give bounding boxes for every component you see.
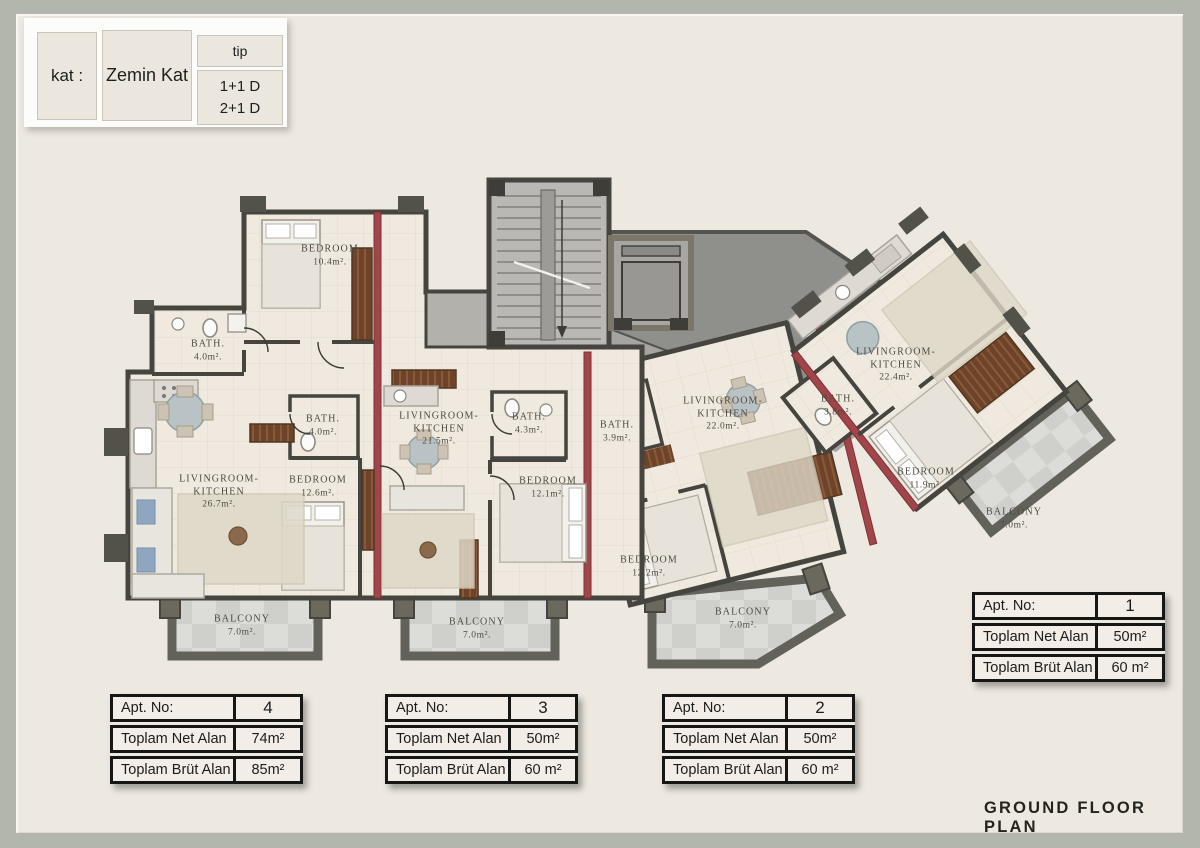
row-label: Toplam Brüt Alan xyxy=(975,657,1098,679)
row-label: Toplam Net Alan xyxy=(388,728,511,750)
legend-box: kat : Zemin Kat tip 1+1 D 2+1 D xyxy=(24,18,287,127)
row-label: Toplam Net Alan xyxy=(113,728,236,750)
apt-table-1: Apt. No:1Toplam Net Alan50m²Toplam Brüt … xyxy=(972,592,1165,682)
row-value: 60 m² xyxy=(1098,657,1162,679)
floor-plan-page: { "legend": { "kat_label": "kat :", "kat… xyxy=(0,0,1200,848)
row-value: 50m² xyxy=(511,728,575,750)
tip-label-cell: tip xyxy=(197,35,283,67)
apt-table-3-row-2: Toplam Brüt Alan60 m² xyxy=(385,756,578,784)
row-value: 1 xyxy=(1098,595,1162,617)
apt-table-4: Apt. No:4Toplam Net Alan74m²Toplam Brüt … xyxy=(110,694,303,784)
apt-table-3: Apt. No:3Toplam Net Alan50m²Toplam Brüt … xyxy=(385,694,578,784)
row-label: Toplam Brüt Alan xyxy=(665,759,788,781)
tip-value-1: 1+1 D xyxy=(220,76,260,98)
row-label: Toplam Brüt Alan xyxy=(388,759,511,781)
apt-table-1-row-0: Apt. No:1 xyxy=(972,592,1165,620)
tip-label: tip xyxy=(233,43,248,59)
apt-table-3-row-1: Toplam Net Alan50m² xyxy=(385,725,578,753)
elevator xyxy=(611,238,691,330)
kat-label: kat : xyxy=(51,66,83,86)
row-label: Apt. No: xyxy=(975,595,1098,617)
row-value: 74m² xyxy=(236,728,300,750)
row-value: 2 xyxy=(788,697,852,719)
apt-table-2-row-0: Apt. No:2 xyxy=(662,694,855,722)
tip-value-2: 2+1 D xyxy=(220,98,260,120)
row-value: 4 xyxy=(236,697,300,719)
apt-table-4-row-2: Toplam Brüt Alan85m² xyxy=(110,756,303,784)
apt-table-3-row-0: Apt. No:3 xyxy=(385,694,578,722)
kat-label-cell: kat : xyxy=(37,32,97,120)
apt-table-2-row-2: Toplam Brüt Alan60 m² xyxy=(662,756,855,784)
kat-value: Zemin Kat xyxy=(106,65,188,86)
row-label: Toplam Net Alan xyxy=(665,728,788,750)
row-value: 60 m² xyxy=(788,759,852,781)
apt-table-2-row-1: Toplam Net Alan50m² xyxy=(662,725,855,753)
apt-table-4-row-0: Apt. No:4 xyxy=(110,694,303,722)
row-label: Toplam Brüt Alan xyxy=(113,759,236,781)
tip-values-cell: 1+1 D 2+1 D xyxy=(197,70,283,125)
row-value: 3 xyxy=(511,697,575,719)
row-label: Toplam Net Alan xyxy=(975,626,1098,648)
apt-table-1-row-1: Toplam Net Alan50m² xyxy=(972,623,1165,651)
row-label: Apt. No: xyxy=(388,697,511,719)
row-value: 50m² xyxy=(1098,626,1162,648)
row-value: 50m² xyxy=(788,728,852,750)
row-value: 85m² xyxy=(236,759,300,781)
apt-table-1-row-2: Toplam Brüt Alan60 m² xyxy=(972,654,1165,682)
apt-table-4-row-1: Toplam Net Alan74m² xyxy=(110,725,303,753)
row-label: Apt. No: xyxy=(113,697,236,719)
staircase xyxy=(489,180,609,347)
plan-title: GROUND FLOOR PLAN xyxy=(984,799,1200,837)
row-value: 60 m² xyxy=(511,759,575,781)
apt-table-2: Apt. No:2Toplam Net Alan50m²Toplam Brüt … xyxy=(662,694,855,784)
kat-value-cell: Zemin Kat xyxy=(102,30,192,121)
row-label: Apt. No: xyxy=(665,697,788,719)
